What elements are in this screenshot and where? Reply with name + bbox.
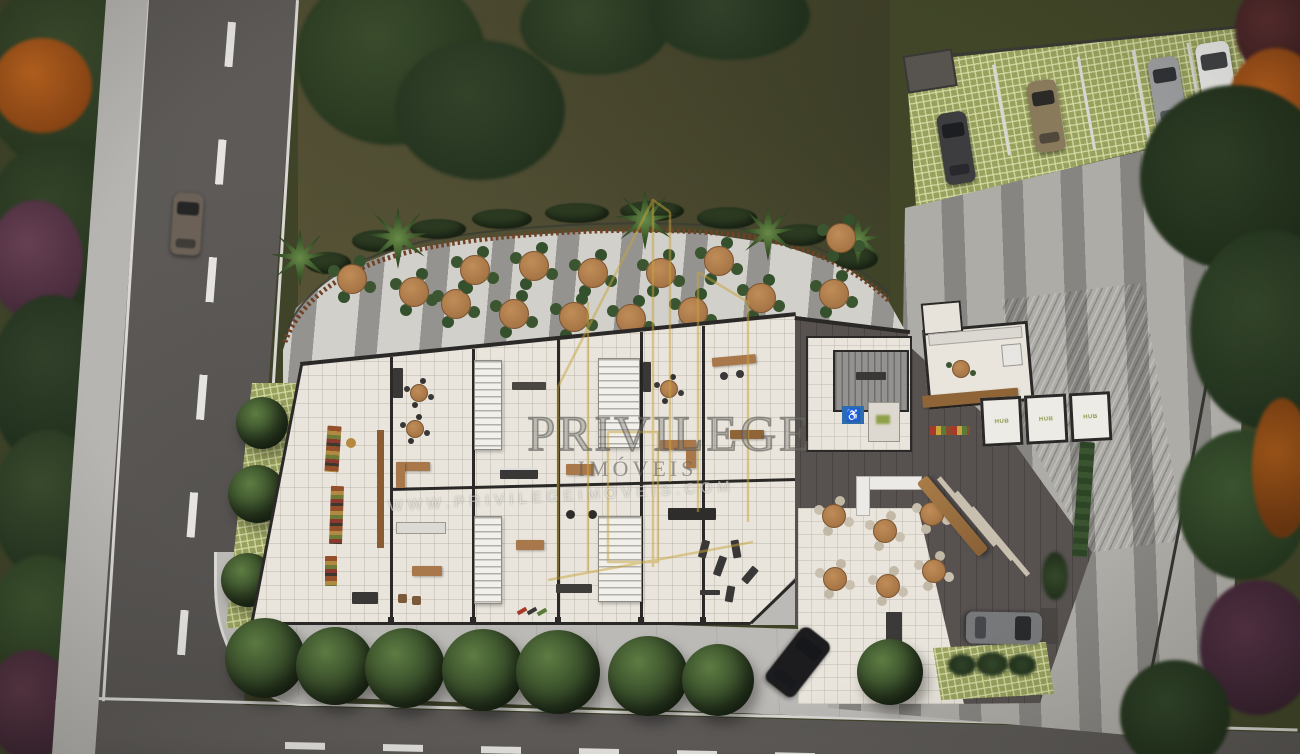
hub-booth-label: HUB [1039,416,1054,423]
counter [500,468,538,479]
watermark-division: IMÓVEIS [570,456,705,482]
sofa [393,368,403,398]
storefront-post [638,617,644,624]
hub-booth: HUB [1024,394,1068,445]
storefront-post [470,617,476,624]
tree [236,397,288,449]
market-counter [352,592,378,604]
chair [398,594,407,603]
retail-display-shelf [930,426,970,435]
elevator-logo [876,415,890,424]
aerial-site-plan-render: ♿ HUB HUB HUB [0,0,1300,754]
utility-shed [902,48,957,93]
restaurant-table [873,519,897,543]
stair-landing [856,372,886,380]
driving-car [170,192,204,256]
terrace-table [499,299,529,329]
terrace-table [826,223,856,253]
fridge [1001,343,1023,367]
cafe-table [406,420,424,438]
terrace-table [819,279,849,309]
wheelchair-icon: ♿ [846,409,861,421]
market-basket [346,438,356,448]
hub-booths: HUB HUB HUB [980,391,1112,446]
lounge-plant [1042,552,1068,600]
terrace-table [399,277,429,307]
storefront-post [388,617,394,624]
storefront-post [555,617,561,624]
hub-booth-label: HUB [1083,413,1098,420]
sidewalk-tree [365,628,445,708]
l-counter [396,462,405,488]
hub-booth-label: HUB [995,418,1010,425]
building-wall [252,622,808,625]
sidewalk-tree [516,630,600,714]
market-wall-shelf [377,430,384,548]
market-shelf [329,486,344,544]
cafe-table [410,384,428,402]
desk [516,540,544,550]
hub-booth: HUB [980,396,1024,447]
tree-cluster [395,40,565,180]
sidewalk-tree [225,618,305,698]
sidewalk-tree [857,639,923,705]
desk [412,566,442,576]
mezzanine-stair [474,516,502,604]
chair [412,596,421,605]
wc-room [921,300,964,335]
restaurant-table [876,574,900,598]
sidewalk-tree [682,644,754,716]
storefront-post [700,617,706,624]
restaurant-table [922,559,946,583]
market-shelf [325,556,337,586]
hedge [472,209,532,229]
shelf [512,382,546,390]
accessibility-sign: ♿ [842,406,864,424]
planter-shrub [1008,654,1036,676]
watermark-brand: PRIVILEGE [495,404,845,462]
planter-shrub [976,652,1008,676]
sidewalk-tree [296,627,374,705]
wet-counter [396,522,446,534]
brand-logo-icon [548,182,768,582]
kitchen-table [952,360,970,378]
planter-shrub [948,654,976,676]
sidewalk-tree [442,629,524,711]
restaurant-table [822,504,846,528]
terrace-table [337,264,367,294]
terrace-table [519,251,549,281]
terrace-table [460,255,490,285]
counter [556,584,592,593]
sidewalk-tree [608,636,688,716]
terrace-table [441,289,471,319]
hub-booth: HUB [1069,391,1113,442]
service-counter [856,476,870,516]
gym-bench [700,590,720,595]
restaurant-table [823,567,847,591]
parked-sedan [966,611,1043,644]
lounge-sofa [1040,608,1058,644]
